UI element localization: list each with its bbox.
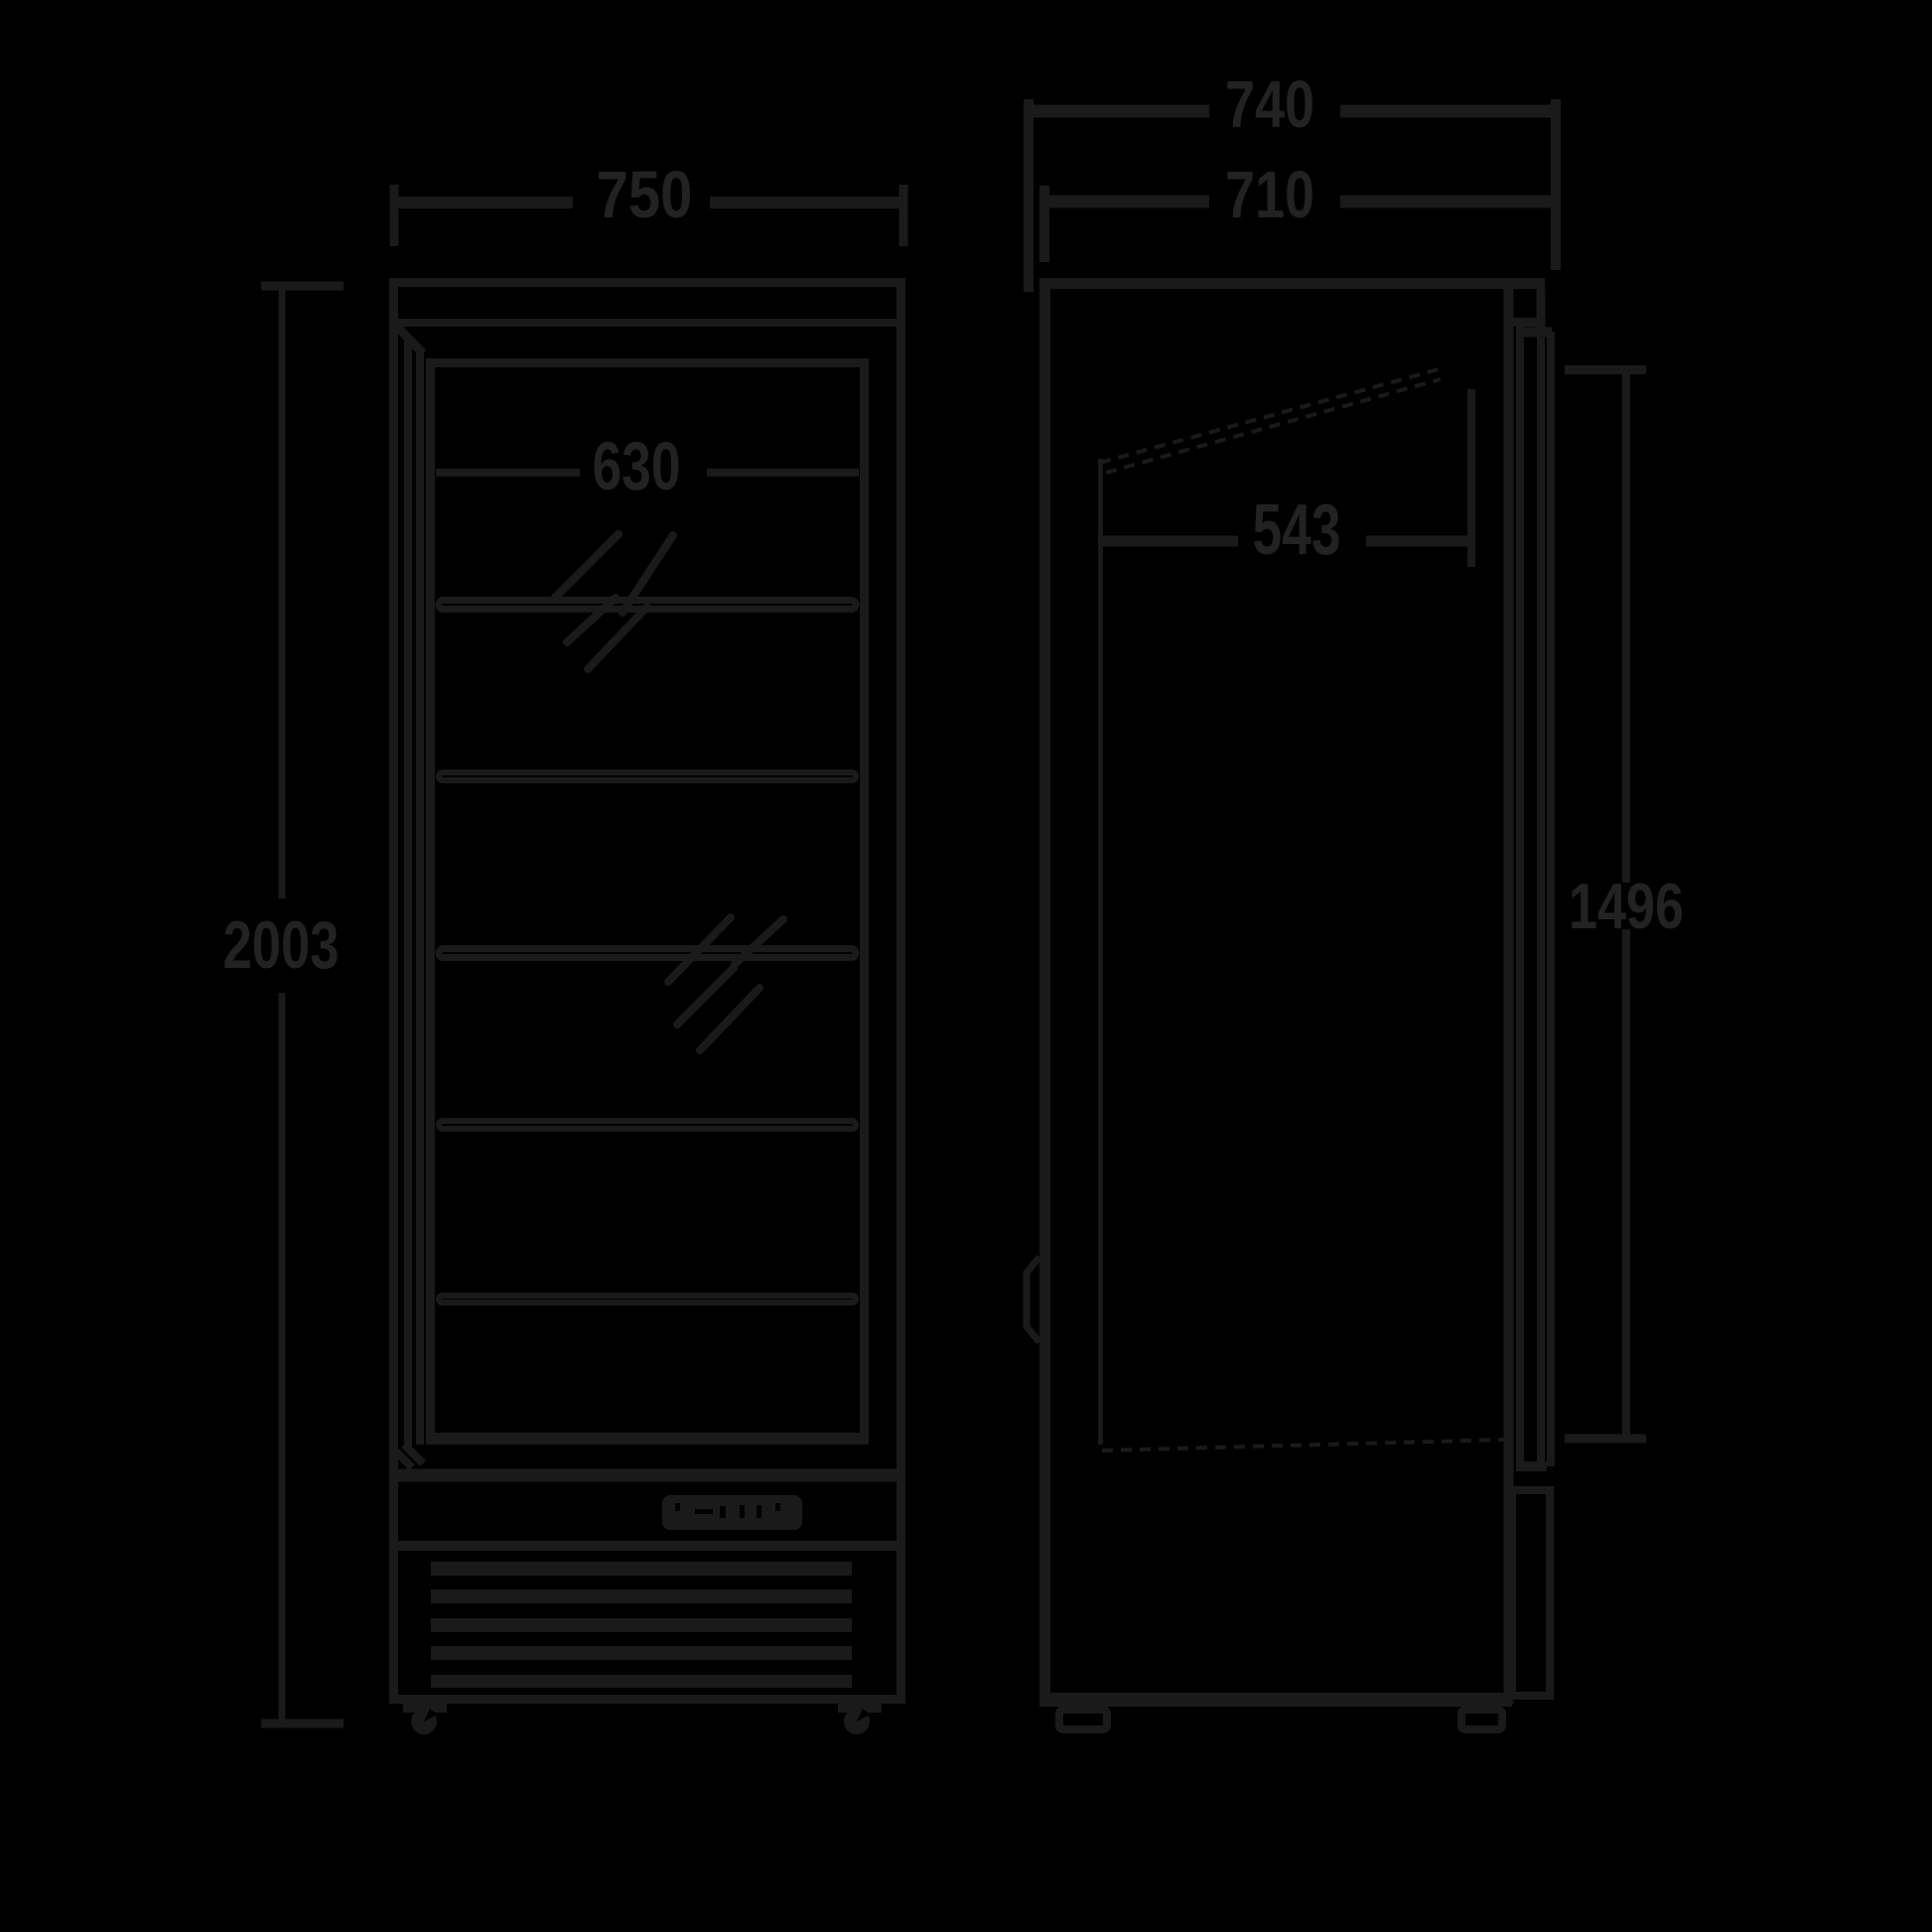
svg-text:740: 740 [1225,68,1314,142]
svg-text:710: 710 [1225,158,1314,232]
svg-text:543: 543 [1253,490,1341,570]
svg-text:2003: 2003 [223,907,340,983]
svg-text:1496: 1496 [1569,870,1684,942]
svg-text:750: 750 [597,158,693,232]
svg-text:630: 630 [593,428,681,504]
